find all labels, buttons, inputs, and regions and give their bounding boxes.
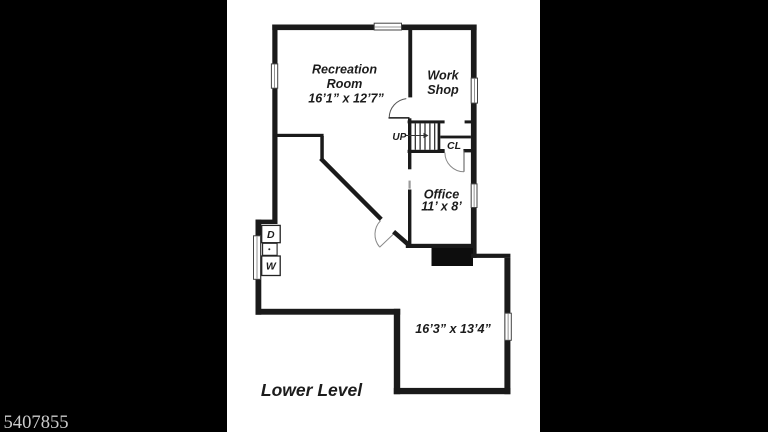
svg-text:5407855: 5407855 [4,412,69,432]
svg-text:Recreation: Recreation [312,63,377,77]
svg-text:Lower Level: Lower Level [261,380,363,400]
svg-text:16’3” x 13’4”: 16’3” x 13’4” [415,322,491,336]
svg-text:D: D [267,229,275,241]
svg-text:11’ x 8’: 11’ x 8’ [421,200,462,214]
svg-text:Room: Room [327,77,363,91]
svg-text:16’1” x 12’7”: 16’1” x 12’7” [308,92,384,106]
svg-text:Work: Work [427,68,459,82]
svg-text:UP: UP [392,132,406,143]
svg-text:Shop: Shop [427,83,459,97]
svg-text:W: W [266,261,277,273]
svg-text:CL: CL [447,140,461,152]
